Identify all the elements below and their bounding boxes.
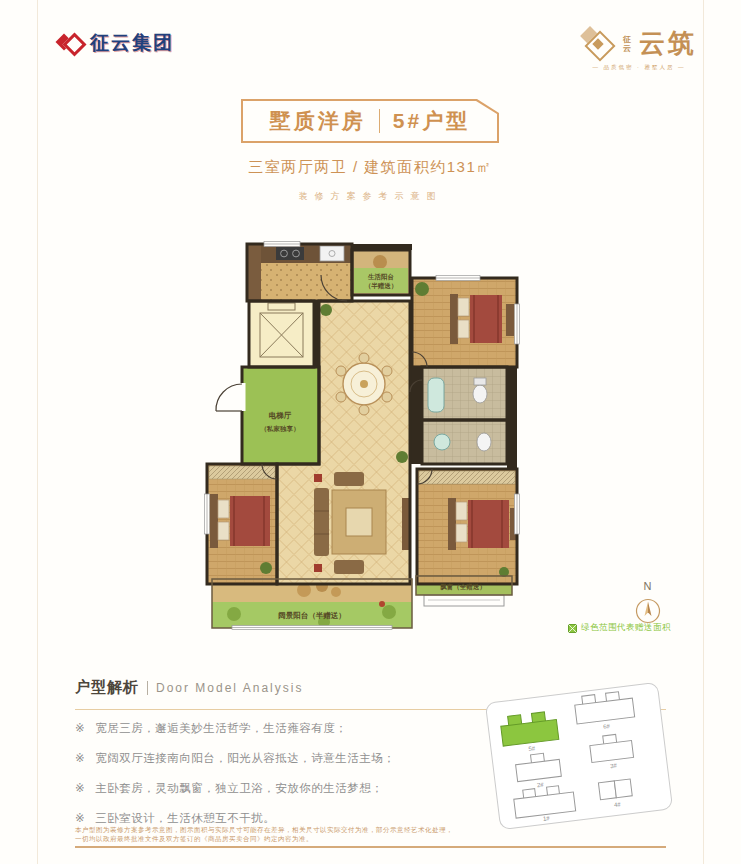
title-divider [379,109,380,133]
building-2: 2# [515,751,563,790]
legend-green-icon [568,624,577,633]
building-5: 5# [500,711,560,756]
main-balcony [212,579,412,628]
point-text: 三卧室设计，生活休憩互不干扰。 [95,811,275,826]
legend-text: 绿色范围代表赠送面积 [581,622,671,634]
analysis-heading-cn: 户型解析 [75,678,139,697]
project-prefix-bottom: 云 [623,44,631,53]
bay-window-label: 飘窗（全赠送） [439,583,486,591]
building-6: 6# [574,690,636,733]
compass-n-label: N [628,580,668,592]
point-text: 主卧套房，灵动飘窗，独立卫浴，安放你的生活梦想； [95,781,383,796]
page-frame-right [703,0,704,864]
building-label: 2# [537,781,545,788]
building-3: 3# [589,733,635,772]
analysis-point: ※ 三卧室设计，生活休憩互不干扰。 [75,811,455,826]
point-marker: ※ [75,781,85,795]
master-bedroom [417,469,517,584]
title-banner: 墅质洋房 5#户型 [241,99,499,143]
project-name: 云筑 [639,26,697,61]
brand-right: 征 云 云筑 — 品质低密 · 雅墅人居 — [581,26,697,71]
group-name: 征云集团 [90,30,174,56]
disclaimer-line-2: 一切均以政府最终批准文件及双方签订的《商品房买卖合同》约定内容为准。 [75,835,620,844]
analysis-point: ※ 主卧套房，灵动飘窗，独立卫浴，安放你的生活梦想； [75,781,455,796]
service-balcony-label-2: （半赠送） [365,282,398,290]
elevator-hall-label-1: 电梯厅 [269,411,292,420]
bathroom-2 [422,420,507,464]
disclaimer-line-1: 本户型图为装修方案参考示意图，图示面积与实际尺寸可能存在差异，相关尺寸以实际交付… [75,826,620,835]
page-frame-left [37,0,38,864]
unit-subtitle: 三室两厅两卫 / 建筑面积约131㎡ [0,158,741,177]
bedroom-3 [207,464,277,584]
elevator [249,301,314,367]
point-marker: ※ [75,751,85,765]
kitchen [247,244,352,301]
bathroom-1 [422,367,507,420]
analysis-heading-divider [147,681,148,695]
analysis-point: ※ 宽阔双厅连接南向阳台，阳光从容抵达，诗意生活主场； [75,751,455,766]
building-label: 4# [614,801,622,808]
analysis-point: ※ 宽居三房，邂逅美妙生活哲学，生活雍容有度； [75,721,455,736]
building-label: 3# [610,762,618,769]
footer-rule [75,846,666,848]
point-marker: ※ [75,721,85,735]
legend-note: 绿色范围代表赠送面积 [0,622,671,634]
building-4: 4# [598,779,633,810]
title-product-type: 墅质洋房 [270,107,366,135]
analysis-heading-en: Door Model Analysis [156,681,303,695]
building-label: 6# [603,723,611,730]
decoration-note: 装修方案参考示意图 [0,190,741,203]
project-logo-icon [581,27,615,61]
point-marker: ※ [75,811,85,825]
site-plan: 5# 6# 2# 3# 1# 4# [485,682,673,830]
main-balcony-label: 阔景阳台（半赠送） [278,611,346,620]
brand-left: 征云集团 [57,30,174,56]
elevator-hall-label-2: （私家独享） [261,425,300,433]
title-unit-number: 5#户型 [393,107,470,135]
point-text: 宽阔双厅连接南向阳台，阳光从容抵达，诗意生活主场； [95,751,395,766]
disclaimer: 本户型图为装修方案参考示意图，图示面积与实际尺寸可能存在差异，相关尺寸以实际交付… [75,826,620,843]
point-text: 宽居三房，邂逅美妙生活哲学，生活雍容有度； [95,721,347,736]
service-balcony-label-1: 生活阳台 [367,273,394,281]
group-logo-icon [57,30,83,56]
project-tagline: — 品质低密 · 雅墅人居 — [593,64,686,71]
bedroom-2 [412,278,517,367]
project-prefix: 征 云 [623,35,631,53]
building-label: 5# [528,745,536,752]
building-1: 1# [513,784,577,825]
floor-plan: 生活阳台 （半赠送） 电梯厅 （私家独享） 阔景阳台（半赠送） 飘窗（全赠送） [204,232,537,644]
building-label: 1# [543,815,551,822]
project-prefix-top: 征 [623,35,631,44]
analysis-points: ※ 宽居三房，邂逅美妙生活哲学，生活雍容有度； ※ 宽阔双厅连接南向阳台，阳光从… [75,721,455,841]
analysis-heading: 户型解析 Door Model Analysis [75,678,303,697]
